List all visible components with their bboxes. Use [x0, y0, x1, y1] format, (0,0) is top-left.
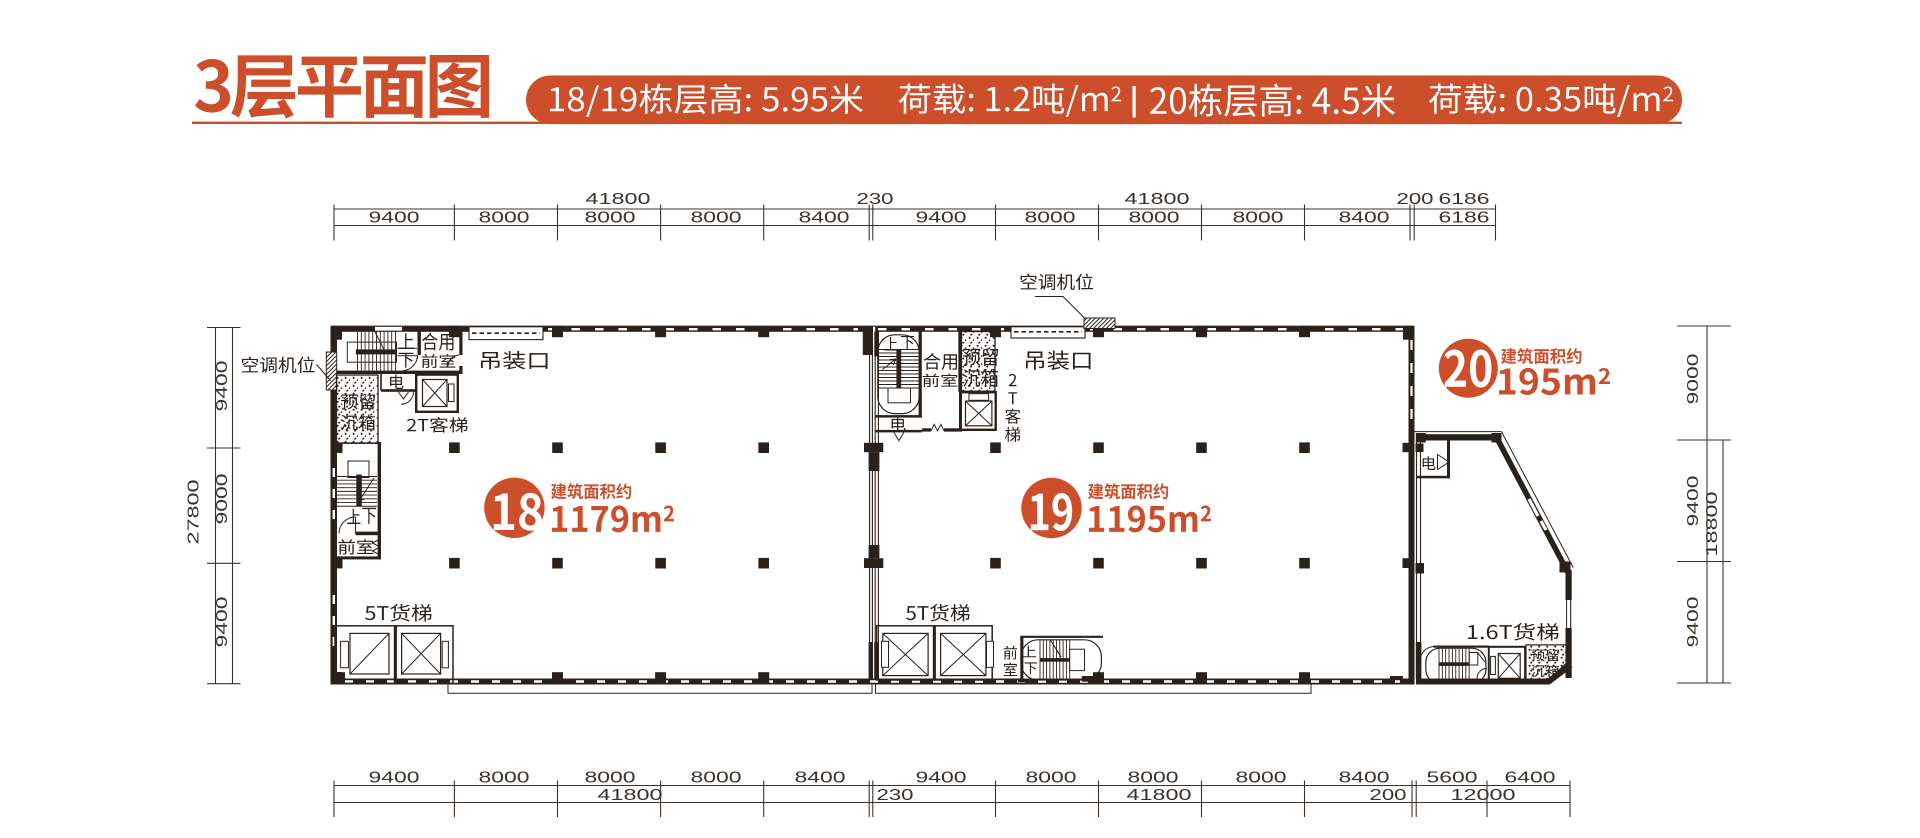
svg-text:41800: 41800: [598, 787, 663, 804]
svg-text:9400: 9400: [916, 770, 967, 787]
svg-text:200: 200: [1370, 787, 1407, 804]
svg-text:6400: 6400: [1505, 770, 1556, 787]
svg-text:8000: 8000: [691, 770, 742, 787]
svg-text:6186: 6186: [1439, 210, 1490, 227]
svg-text:18800: 18800: [1704, 491, 1721, 556]
svg-text:41800: 41800: [1125, 191, 1190, 208]
svg-text:9400: 9400: [1685, 475, 1702, 526]
svg-text:8000: 8000: [479, 210, 530, 227]
svg-text:41800: 41800: [586, 191, 651, 208]
svg-text:8000: 8000: [1025, 210, 1076, 227]
svg-text:9400: 9400: [1685, 596, 1702, 647]
svg-text:9000: 9000: [1685, 353, 1702, 404]
svg-text:8000: 8000: [1129, 210, 1180, 227]
svg-text:9400: 9400: [369, 210, 420, 227]
svg-text:9400: 9400: [916, 210, 967, 227]
svg-text:8000: 8000: [1233, 210, 1284, 227]
svg-text:8000: 8000: [585, 770, 636, 787]
svg-text:9400: 9400: [369, 770, 420, 787]
svg-text:8000: 8000: [1026, 770, 1077, 787]
svg-text:8400: 8400: [799, 210, 850, 227]
svg-text:41800: 41800: [1127, 787, 1192, 804]
svg-text:6186: 6186: [1439, 191, 1490, 208]
svg-text:8400: 8400: [1339, 770, 1390, 787]
svg-text:12000: 12000: [1451, 787, 1516, 804]
svg-text:5600: 5600: [1427, 770, 1478, 787]
svg-text:9400: 9400: [214, 360, 231, 411]
svg-text:8000: 8000: [1128, 770, 1179, 787]
svg-text:8400: 8400: [1339, 210, 1390, 227]
svg-text:8400: 8400: [795, 770, 846, 787]
svg-text:8000: 8000: [479, 770, 530, 787]
svg-text:230: 230: [857, 191, 894, 208]
svg-text:8000: 8000: [585, 210, 636, 227]
svg-text:230: 230: [877, 787, 914, 804]
svg-text:9000: 9000: [214, 473, 231, 524]
svg-text:200: 200: [1397, 191, 1434, 208]
svg-text:8000: 8000: [1236, 770, 1287, 787]
svg-text:9400: 9400: [214, 596, 231, 647]
svg-text:8000: 8000: [691, 210, 742, 227]
svg-text:27800: 27800: [186, 479, 203, 544]
